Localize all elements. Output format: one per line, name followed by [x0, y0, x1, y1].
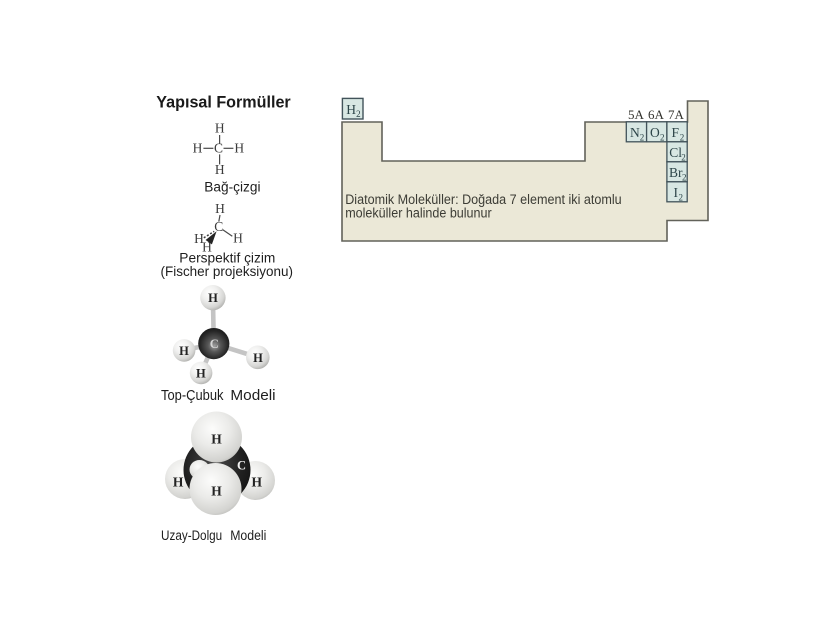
svg-text:H: H	[173, 475, 184, 490]
svg-text:H: H	[215, 201, 225, 216]
svg-text:moleküller halinde bulunur: moleküller halinde bulunur	[345, 205, 492, 220]
svg-text:F: F	[672, 125, 680, 140]
svg-text:2: 2	[682, 172, 687, 182]
svg-text:H: H	[179, 344, 189, 358]
svg-text:H: H	[196, 366, 206, 380]
svg-text:C: C	[210, 337, 219, 351]
svg-text:H: H	[208, 291, 218, 305]
svg-text:Bağ-çizgi: Bağ-çizgi	[204, 180, 260, 195]
svg-text:(Fischer projeksiyonu): (Fischer projeksiyonu)	[161, 264, 294, 279]
svg-text:2: 2	[679, 192, 684, 202]
svg-text:H: H	[211, 431, 222, 446]
svg-text:6A: 6A	[648, 107, 665, 122]
svg-text:H: H	[215, 121, 225, 136]
svg-text:2: 2	[640, 132, 645, 142]
svg-text:Top-Çubuk: Top-Çubuk	[161, 388, 224, 404]
svg-text:7A: 7A	[668, 107, 685, 122]
svg-text:C: C	[237, 459, 246, 473]
svg-text:Modeli: Modeli	[230, 528, 266, 543]
svg-text:H: H	[193, 141, 203, 156]
svg-text:Yapısal Formüller: Yapısal Formüller	[156, 93, 291, 112]
svg-text:Uzay-Dolgu: Uzay-Dolgu	[161, 528, 222, 543]
svg-text:H: H	[215, 162, 225, 177]
svg-text:H: H	[211, 484, 222, 499]
svg-text:H: H	[346, 102, 356, 117]
svg-text:H: H	[252, 475, 263, 490]
svg-text:Br: Br	[669, 165, 683, 180]
svg-text:2: 2	[660, 132, 665, 142]
svg-text:H: H	[234, 141, 244, 156]
svg-text:2: 2	[681, 152, 686, 162]
svg-text:2: 2	[356, 109, 361, 119]
svg-text:H: H	[233, 230, 243, 245]
svg-text:2: 2	[680, 132, 685, 142]
svg-text:5A: 5A	[628, 107, 645, 122]
svg-text:O: O	[650, 125, 660, 140]
svg-text:C: C	[214, 141, 223, 156]
svg-text:H: H	[253, 351, 263, 365]
svg-text:Modeli: Modeli	[230, 387, 275, 404]
svg-text:N: N	[630, 125, 640, 140]
